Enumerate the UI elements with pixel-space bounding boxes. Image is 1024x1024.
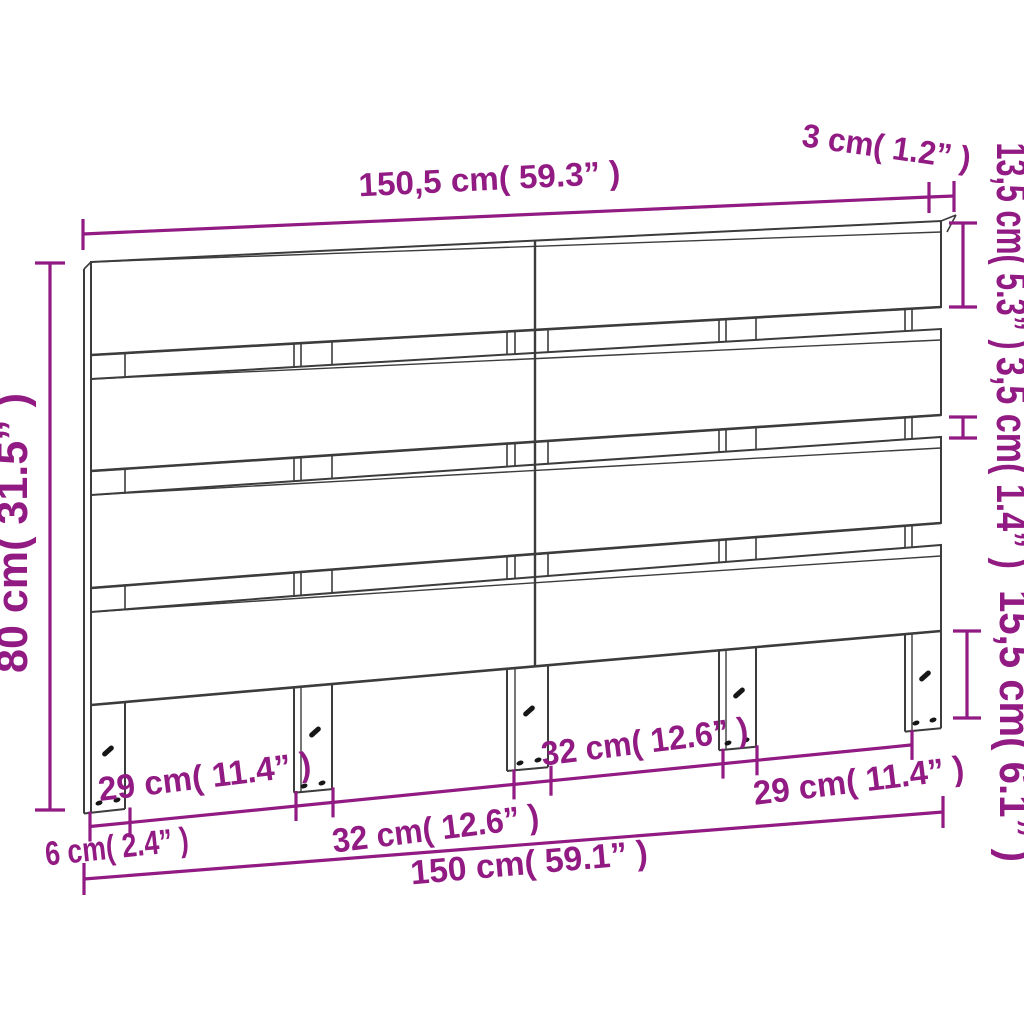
dim-gap-left-label: 29 cm( 11.4” ) — [96, 745, 313, 809]
dim-plank-gap — [949, 417, 977, 438]
dim-depth — [929, 181, 954, 212]
headboard-drawing — [84, 215, 956, 814]
dim-depth-label: 3 cm( 1.2” ) — [800, 116, 973, 176]
screw-dot — [516, 760, 524, 767]
screw-dot — [929, 717, 937, 724]
dim-plank-height — [949, 223, 977, 307]
left-side-strip — [84, 262, 91, 814]
leg-5 — [905, 631, 941, 732]
dim-total-height — [35, 263, 65, 810]
dim-plank-height-label: 13,5 cm( 5.3” ) — [987, 143, 1024, 350]
dim-leg-height — [953, 631, 981, 718]
dim-plank-gap-label: 3,5 cm( 1.4” ) — [987, 357, 1024, 569]
diagram-canvas: 150,5 cm( 59.3” ) 3 cm( 1.2” ) 13,5 cm( … — [0, 0, 1024, 1024]
headboard-dimension-diagram: 150,5 cm( 59.3” ) 3 cm( 1.2” ) 13,5 cm( … — [0, 0, 1024, 1024]
screw-icon — [732, 686, 746, 699]
dim-leg-width-label: 6 cm( 2.4” ) — [43, 821, 190, 874]
screw-icon — [308, 725, 322, 738]
dim-leg-height-label: 15,5 cm( 6.1” ) — [990, 590, 1024, 862]
screw-icon — [522, 704, 536, 717]
dim-total-height-label: 80 cm( 31.5” ) — [0, 393, 37, 673]
screw-icon — [918, 669, 932, 682]
screw-icon — [101, 744, 115, 757]
plank-row-1 — [91, 221, 941, 355]
screw-dot — [318, 780, 326, 787]
screw-dot — [912, 720, 920, 727]
dim-top-width-label: 150,5 cm( 59.3” ) — [358, 154, 621, 204]
